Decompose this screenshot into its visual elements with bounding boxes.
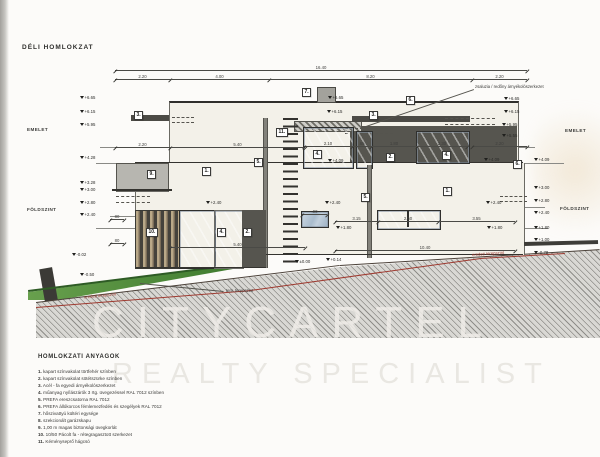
elevation-marker: +1.00 <box>534 237 549 242</box>
elevation-marker: +6.15 <box>80 109 95 114</box>
elevation-marker: +2.40 <box>206 200 221 205</box>
elevation-marker: +6.15 <box>327 109 342 114</box>
elevation-marker: +3.28 <box>80 180 95 185</box>
dashed-line <box>172 117 194 118</box>
elevation-marker: +1.80 <box>336 225 351 230</box>
material-marker: 4. <box>442 151 451 160</box>
elevation-marker: +5.55 <box>502 133 517 138</box>
dim-segment: 3.55 <box>438 221 515 222</box>
base-line <box>135 267 266 268</box>
elevation-marker: +2.40 <box>486 200 501 205</box>
elevation-marker: +3.00 <box>534 185 549 190</box>
elevation-marker: +0.14 <box>326 257 341 262</box>
elevation-marker: +2.40 <box>80 212 95 217</box>
dark-wall-panel <box>242 210 266 267</box>
shading-annotation: zsaluzia / redőny árnyékolószerkezet <box>475 84 544 89</box>
drawing-sheet: zsaluzia / redőny árnyékolószerkezet ter… <box>0 0 600 457</box>
glass-railing-terrace <box>116 163 169 192</box>
material-marker: 6. <box>406 96 415 105</box>
material-marker: 2. <box>243 228 252 237</box>
elevation-marker: +1.80 <box>534 225 549 230</box>
elevation-marker: -0.78 <box>534 250 548 255</box>
elevation-marker: +6.65 <box>80 95 95 100</box>
dim-segment: 10.40 <box>335 250 515 251</box>
elevation-marker: +6.65 <box>504 96 519 101</box>
dim-segment: .65 <box>352 146 371 147</box>
elevation-marker: +5.95 <box>502 122 517 127</box>
dim-segment: 2.20 <box>472 79 527 80</box>
watermark-tagline: REALTY SPECIALIST <box>112 358 551 391</box>
elevation-marker: +4.28 <box>80 155 95 160</box>
timber-slat-panel <box>135 210 180 269</box>
material-marker: 6. <box>513 160 522 169</box>
material-marker: 1. <box>202 167 211 176</box>
floor-label-foldszint-left: FÖLDSZINT <box>27 207 56 212</box>
dim-segment: 2.10 <box>304 146 352 147</box>
page-title: DÉLI HOMLOKZAT <box>22 44 94 51</box>
dashed-line <box>500 196 527 197</box>
legend-item: 1. kapart színvakolat törtfehér színben <box>38 368 164 375</box>
legend-item: 6. PREFA állókorcos fémlemezfedés és sze… <box>38 403 164 410</box>
material-marker: 3. <box>134 111 143 120</box>
elevation-marker: +5.95 <box>80 122 95 127</box>
dim-segment: 80 <box>110 243 124 244</box>
dim-segment: 5.40 <box>170 247 305 248</box>
elevation-marker: +3.00 <box>80 187 95 192</box>
dim-segment: 1.80 <box>371 146 417 147</box>
dim-segment: 80 <box>110 219 124 220</box>
material-marker: 4. <box>217 228 226 237</box>
legend-item: 3. Acél - fa egyedi árnyékolószerkezet <box>38 382 164 389</box>
page-scan-edge <box>0 0 9 457</box>
dim-segment: 4.00 <box>170 79 269 80</box>
elevation-marker: +6.15 <box>504 109 519 114</box>
chimney-ladder <box>283 118 298 267</box>
legend-item: 5. PREFA ereszcsatorna RAL 7012 <box>38 396 164 403</box>
dim-segment: 16.40 <box>115 70 527 71</box>
material-marker: 1. <box>443 187 452 196</box>
material-marker: 7. <box>302 88 311 97</box>
elevation-marker: ±0.00 <box>295 259 310 264</box>
legend-item: 9. 1,00 m magas biztonsági üvegkorlát <box>38 424 164 431</box>
elevation-marker: -0.50 <box>80 272 94 277</box>
terrain-hatch <box>36 248 600 338</box>
elevation-marker: +2.80 <box>80 200 95 205</box>
materials-legend: HOMLOKZATI ANYAGOK 1. kapart színvakolat… <box>38 354 164 445</box>
material-marker: 2. <box>386 153 395 162</box>
elevation-marker: +2.40 <box>534 210 549 215</box>
dim-segment: 2.20 <box>115 147 170 148</box>
elevation-marker: +2.40 <box>325 200 340 205</box>
legend-item: 7. hőszivattyú kültéri egysége <box>38 410 164 417</box>
material-marker: 11. <box>276 128 288 137</box>
elevation-marker: +4.09 <box>328 158 343 163</box>
planned-terrain-label: terv. terepszint <box>226 288 253 293</box>
elevation-marker: -0.02 <box>72 252 86 257</box>
dim-segment: 2.20 <box>472 146 527 147</box>
dim-segment: 2.60 <box>378 221 438 222</box>
material-marker: 5. <box>254 158 263 167</box>
elevation-marker: +2.80 <box>534 198 549 203</box>
material-marker: 3. <box>369 111 378 120</box>
dashed-line <box>445 124 495 125</box>
dim-segment: 3.15 <box>335 221 378 222</box>
glazed-door <box>179 210 216 269</box>
floor-label-emelet-left: EMELET <box>27 127 48 132</box>
rain-downpipe <box>367 165 372 258</box>
elevation-marker: +6.65 <box>328 95 343 100</box>
legend-item: 4. műanyag nyílászárók 3 rtg. üvegezésse… <box>38 389 164 396</box>
dim-segment: .90 <box>302 214 327 215</box>
legend-item: 8. szekcionált garázskapu <box>38 417 164 424</box>
material-marker: 5. <box>361 193 370 202</box>
floor-label-foldszint-right: FÖLDSZINT <box>560 206 589 211</box>
window <box>356 131 373 169</box>
material-marker: 10. <box>146 228 158 237</box>
terrace-slab <box>112 189 172 191</box>
glazed-door <box>214 210 244 269</box>
dashed-line <box>500 201 527 202</box>
material-marker: 4. <box>313 150 322 159</box>
material-marker: 9. <box>147 170 156 179</box>
dim-segment: 2.30 <box>417 146 467 147</box>
level-triangle-icon <box>80 96 84 99</box>
dashed-line <box>445 118 495 119</box>
dashed-line <box>116 202 150 203</box>
dashed-line <box>116 196 150 197</box>
dim-segment: 5.40 <box>170 147 305 148</box>
legend-item: 2. kapart színvakolat sötétszürke színbe… <box>38 375 164 382</box>
elevation-marker: +4.09 <box>484 157 499 162</box>
elevation-marker: +4.09 <box>534 157 549 162</box>
dashed-line <box>172 122 194 123</box>
elevation-marker: +1.80 <box>487 225 502 230</box>
dim-segment: 8.20 <box>269 79 472 80</box>
dim-segment: 2.20 <box>115 79 170 80</box>
legend-item: 11. Kéményseprő hágcsó <box>38 438 164 445</box>
floor-label-emelet-right: EMELET <box>565 128 586 133</box>
legend-item: 10. 10/50 Pácolt fa - rétegragasztott sz… <box>38 431 164 438</box>
